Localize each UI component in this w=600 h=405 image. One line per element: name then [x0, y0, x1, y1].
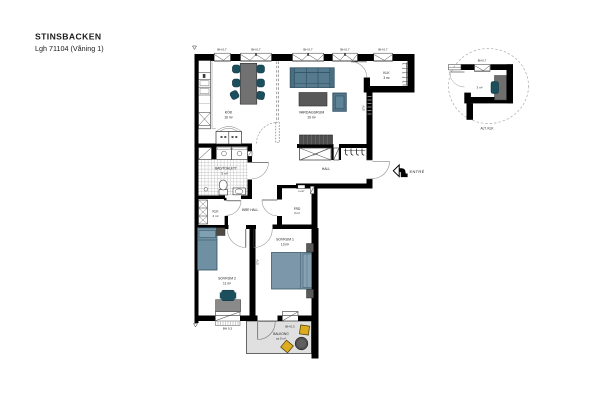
svg-text:KLK: KLK [383, 71, 390, 75]
svg-text:3 m²: 3 m² [477, 86, 483, 90]
svg-text:ETV: ETV [362, 105, 366, 110]
svg-text:BAD/TOALETT: BAD/TOALETT [215, 167, 237, 171]
svg-text:SOVRUM 1: SOVRUM 1 [276, 238, 294, 242]
svg-text:BH 0,7: BH 0,7 [478, 59, 487, 63]
svg-text:ca 5 m²: ca 5 m² [276, 337, 286, 341]
svg-text:EL/RT: EL/RT [298, 191, 305, 193]
svg-text:HALL: HALL [322, 167, 331, 171]
svg-text:BH 0,3: BH 0,3 [223, 327, 233, 331]
svg-text:2 m²: 2 m² [213, 214, 219, 218]
svg-text:BH 0,7: BH 0,7 [303, 48, 313, 52]
svg-text:BH 0,7: BH 0,7 [217, 48, 227, 52]
svg-text:ENTRÉ: ENTRÉ [410, 169, 425, 174]
svg-text:INRE HALL: INRE HALL [242, 208, 259, 212]
svg-text:KLK: KLK [212, 210, 219, 214]
svg-text:ALT. KLK: ALT. KLK [480, 127, 494, 131]
svg-text:Lgh 71104 (Våning 1): Lgh 71104 (Våning 1) [35, 44, 104, 53]
svg-text:19 m²: 19 m² [307, 116, 316, 120]
svg-text:STINSBACKEN: STINSBACKEN [35, 32, 101, 42]
svg-text:BH 0,3: BH 0,3 [285, 325, 295, 329]
svg-text:16 m²: 16 m² [224, 116, 233, 120]
svg-text:BALKONG: BALKONG [273, 332, 289, 336]
svg-text:BH 0,7: BH 0,7 [340, 48, 350, 52]
svg-text:BH 0,7: BH 0,7 [251, 48, 261, 52]
svg-text:13 m²: 13 m² [281, 243, 289, 247]
svg-text:11 m²: 11 m² [223, 281, 231, 285]
svg-text:SOVRUM 2: SOVRUM 2 [218, 277, 236, 281]
svg-text:5 m²: 5 m² [221, 172, 227, 176]
svg-text:KÖK: KÖK [225, 111, 233, 115]
svg-text:3 m²: 3 m² [294, 211, 300, 215]
svg-text:3 m²: 3 m² [383, 76, 389, 80]
svg-text:BH 0,7: BH 0,7 [378, 48, 388, 52]
svg-text:ETV: ETV [256, 259, 260, 264]
svg-text:VARDAGSRUM: VARDAGSRUM [299, 111, 325, 115]
